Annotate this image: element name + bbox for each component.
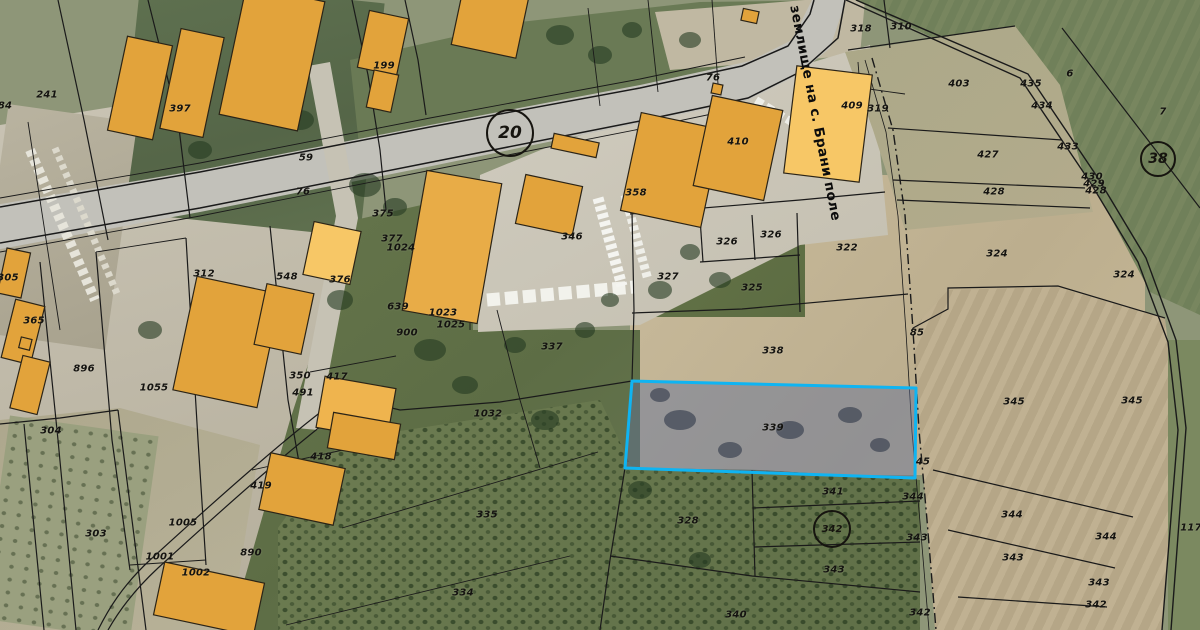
building-footprint[interactable] (19, 337, 32, 350)
building-footprint[interactable] (303, 222, 361, 285)
building-footprint[interactable] (0, 248, 31, 298)
building-footprint[interactable] (402, 170, 502, 323)
map-vector-layer (0, 0, 1200, 630)
building-footprint[interactable] (451, 0, 528, 58)
building-footprint[interactable] (10, 355, 50, 414)
building-footprint[interactable] (366, 70, 398, 112)
building-footprint[interactable] (219, 0, 325, 131)
building-footprint[interactable] (741, 8, 759, 23)
building-footprint[interactable] (515, 175, 582, 236)
map-canvas[interactable]: 8424139719959767637537637710246399001023… (0, 0, 1200, 630)
building-footprint[interactable] (357, 10, 408, 75)
building-footprint[interactable] (711, 83, 723, 95)
building-footprint[interactable] (259, 453, 345, 526)
building-footprint[interactable] (551, 133, 599, 157)
building-footprint[interactable] (154, 562, 265, 630)
building-footprint[interactable] (693, 96, 783, 201)
